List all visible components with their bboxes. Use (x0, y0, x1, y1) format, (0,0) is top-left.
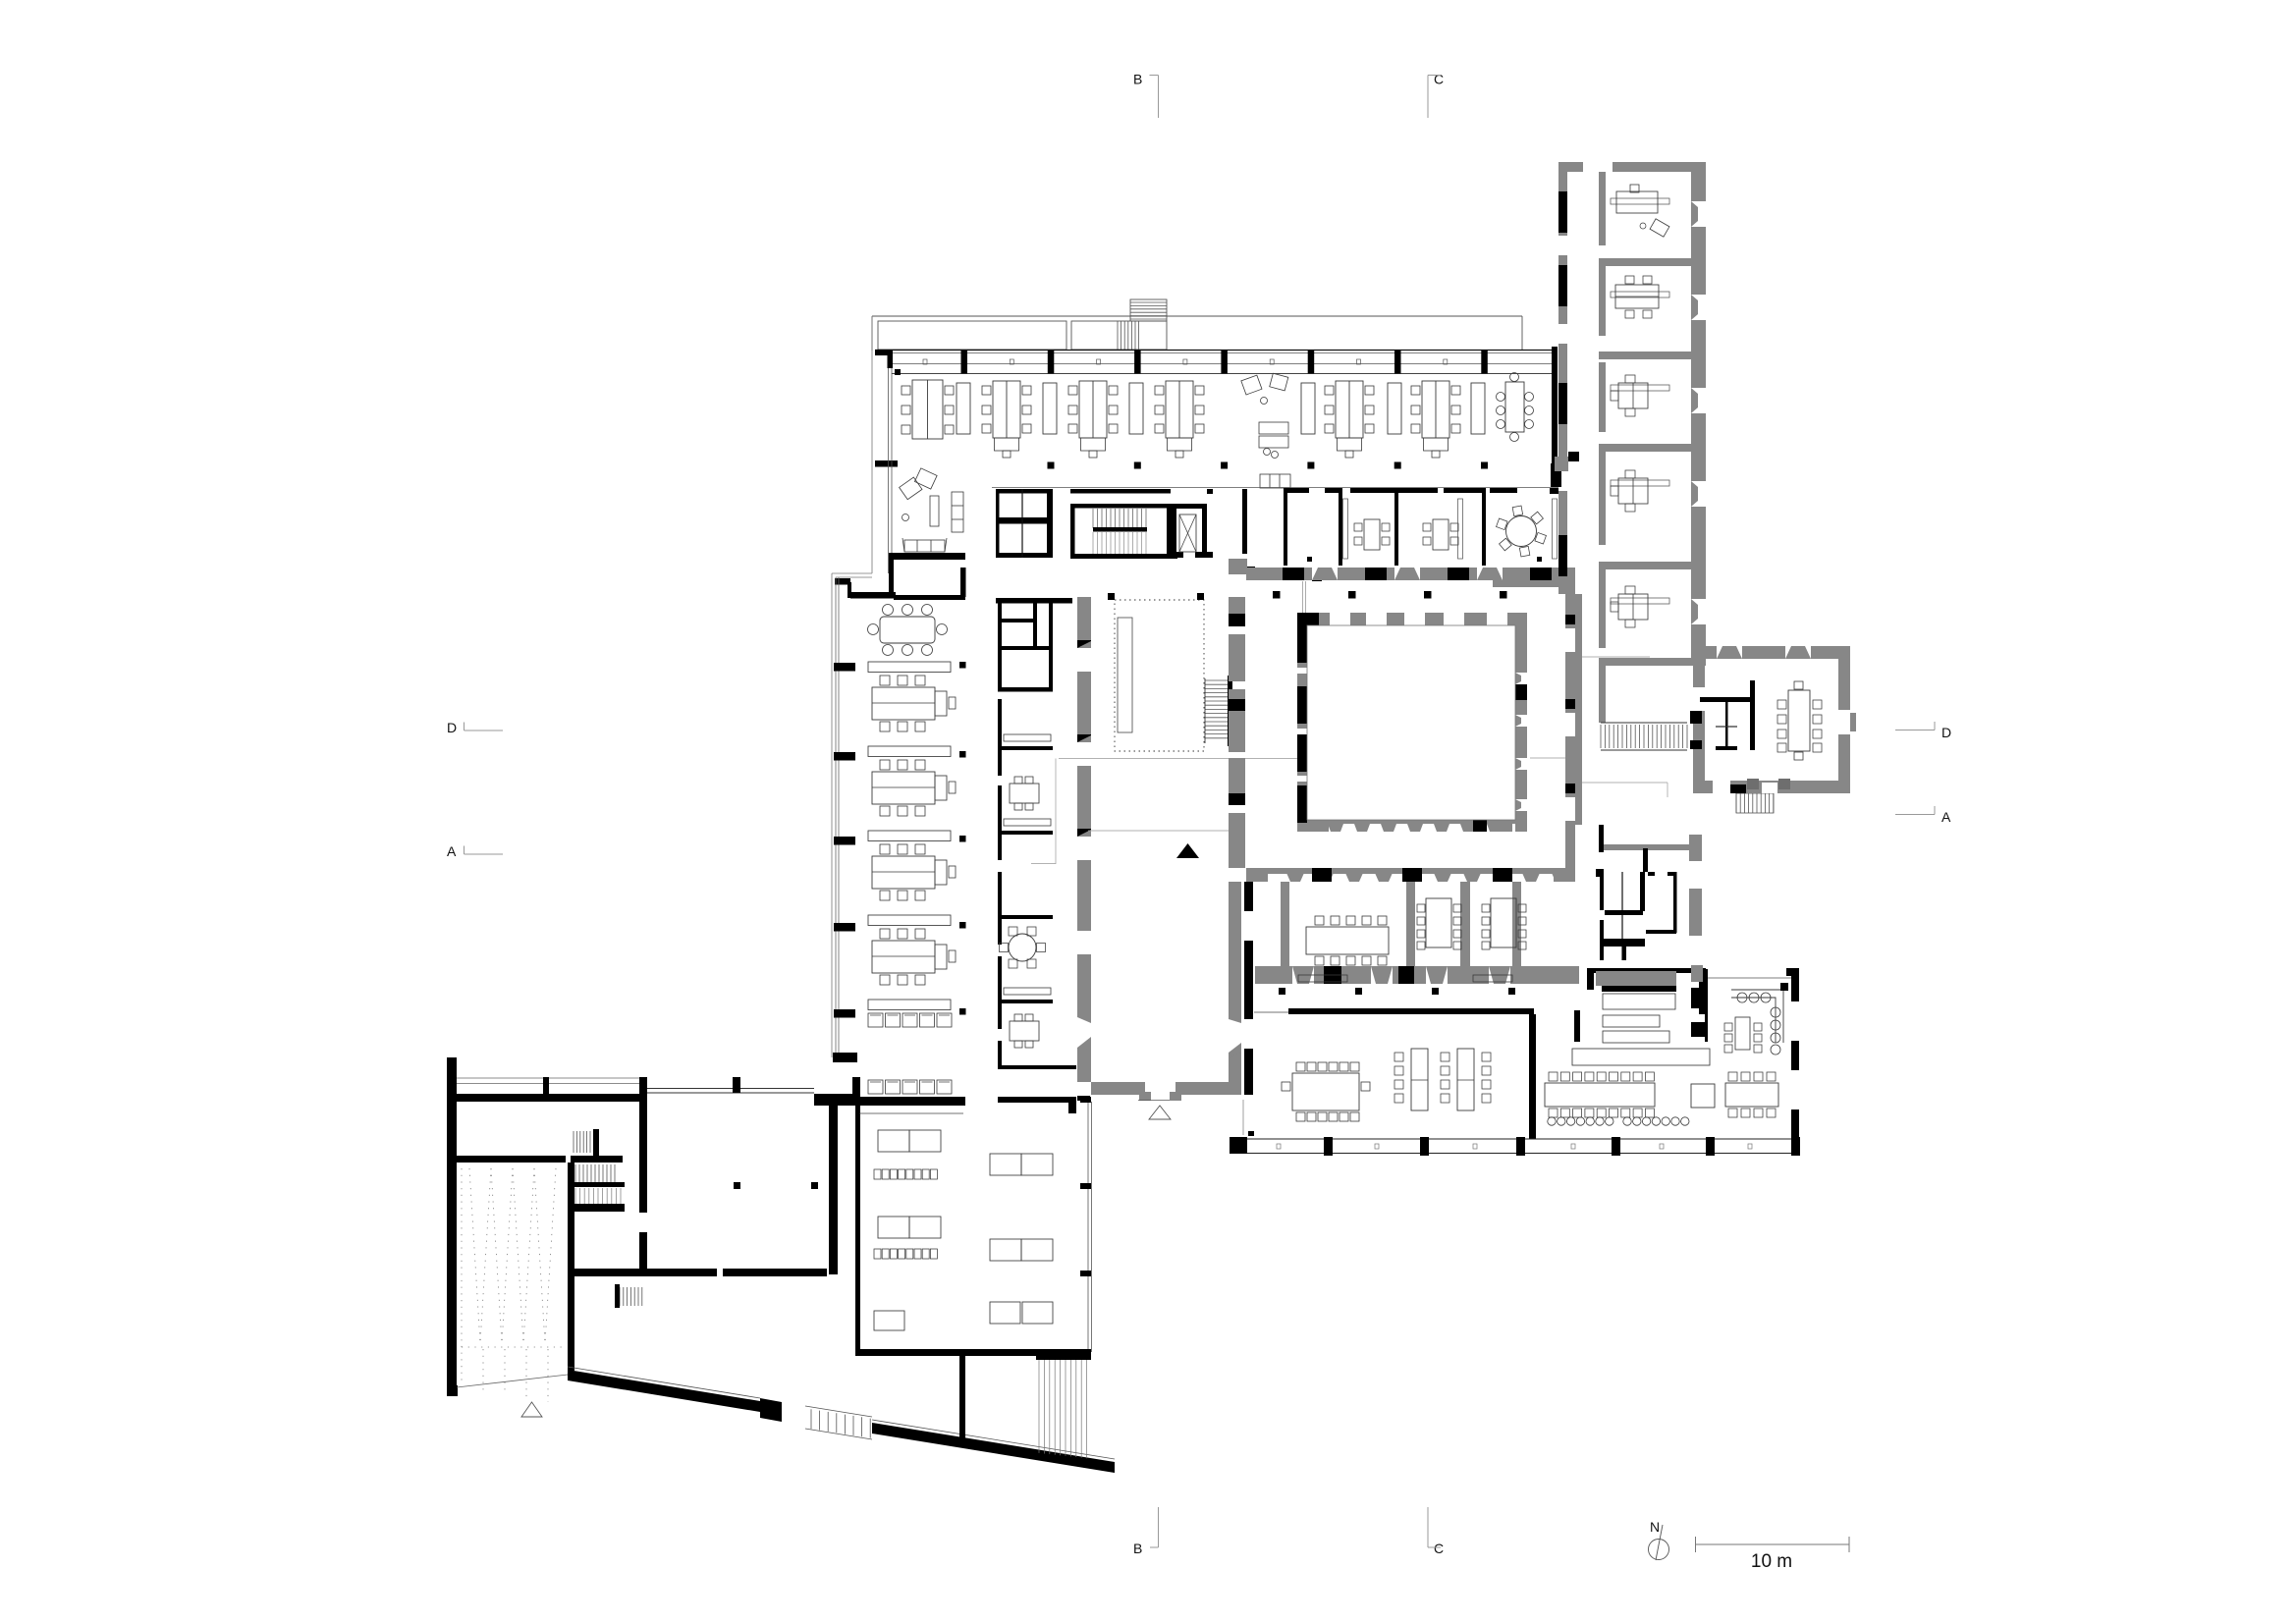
svg-text:C: C (1434, 1541, 1444, 1556)
svg-text:10 m: 10 m (1751, 1551, 1792, 1572)
svg-text:D: D (447, 720, 457, 735)
svg-text:N: N (1650, 1519, 1660, 1535)
svg-text:C: C (1434, 72, 1444, 87)
svg-text:B: B (1133, 72, 1142, 87)
svg-text:D: D (1941, 725, 1951, 740)
svg-text:B: B (1133, 1541, 1142, 1556)
svg-text:A: A (447, 843, 457, 859)
svg-text:A: A (1941, 809, 1951, 825)
